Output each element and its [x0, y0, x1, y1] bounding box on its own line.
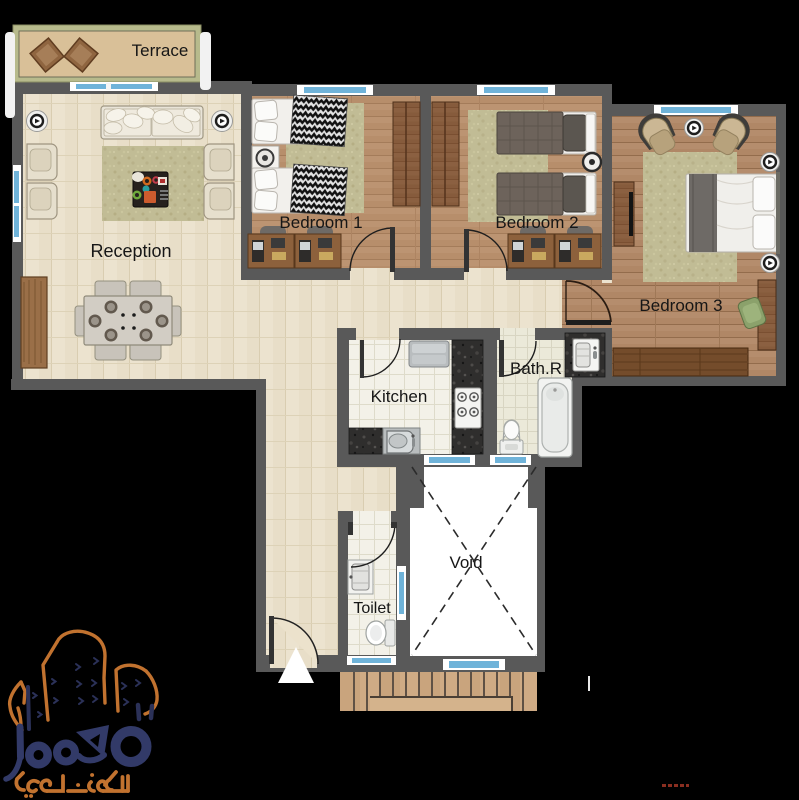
svg-text:Bedroom 1: Bedroom 1	[279, 213, 362, 232]
svg-text:Kitchen: Kitchen	[371, 387, 428, 406]
svg-text:Reception: Reception	[90, 241, 171, 261]
svg-text:Toilet: Toilet	[353, 600, 391, 617]
svg-text:Terrace: Terrace	[132, 41, 189, 60]
svg-text:Bedroom 3: Bedroom 3	[639, 296, 722, 315]
svg-text:Bath.R: Bath.R	[510, 359, 562, 378]
svg-text:Bedroom 2: Bedroom 2	[495, 213, 578, 232]
